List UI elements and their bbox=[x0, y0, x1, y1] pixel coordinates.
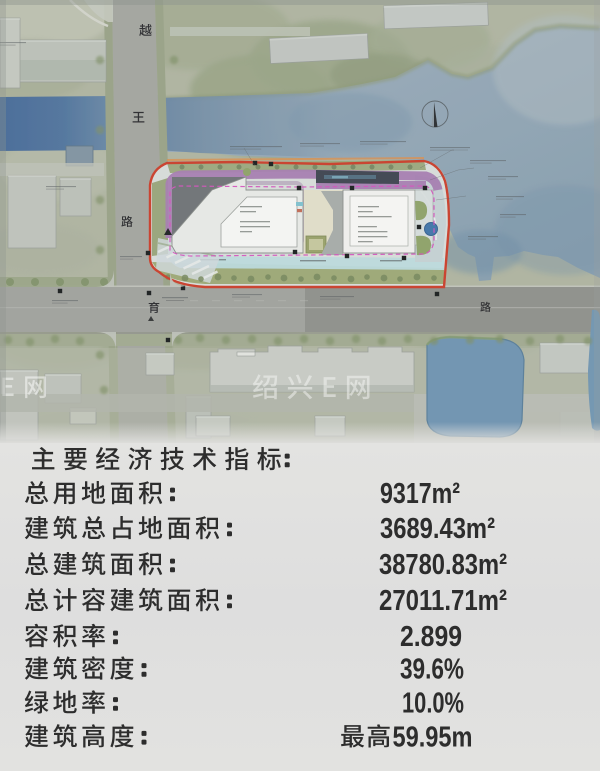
svg-text:38780.83m²: 38780.83m² bbox=[379, 549, 507, 581]
svg-text:39.6%: 39.6% bbox=[400, 654, 464, 686]
svg-text:59.95m: 59.95m bbox=[393, 721, 473, 753]
svg-text:27011.71m²: 27011.71m² bbox=[379, 585, 507, 617]
svg-text:2.899: 2.899 bbox=[400, 621, 462, 653]
svg-text:9317m²: 9317m² bbox=[380, 478, 460, 510]
svg-text:3689.43m²: 3689.43m² bbox=[380, 513, 495, 545]
svg-text:10.0%: 10.0% bbox=[402, 688, 464, 720]
